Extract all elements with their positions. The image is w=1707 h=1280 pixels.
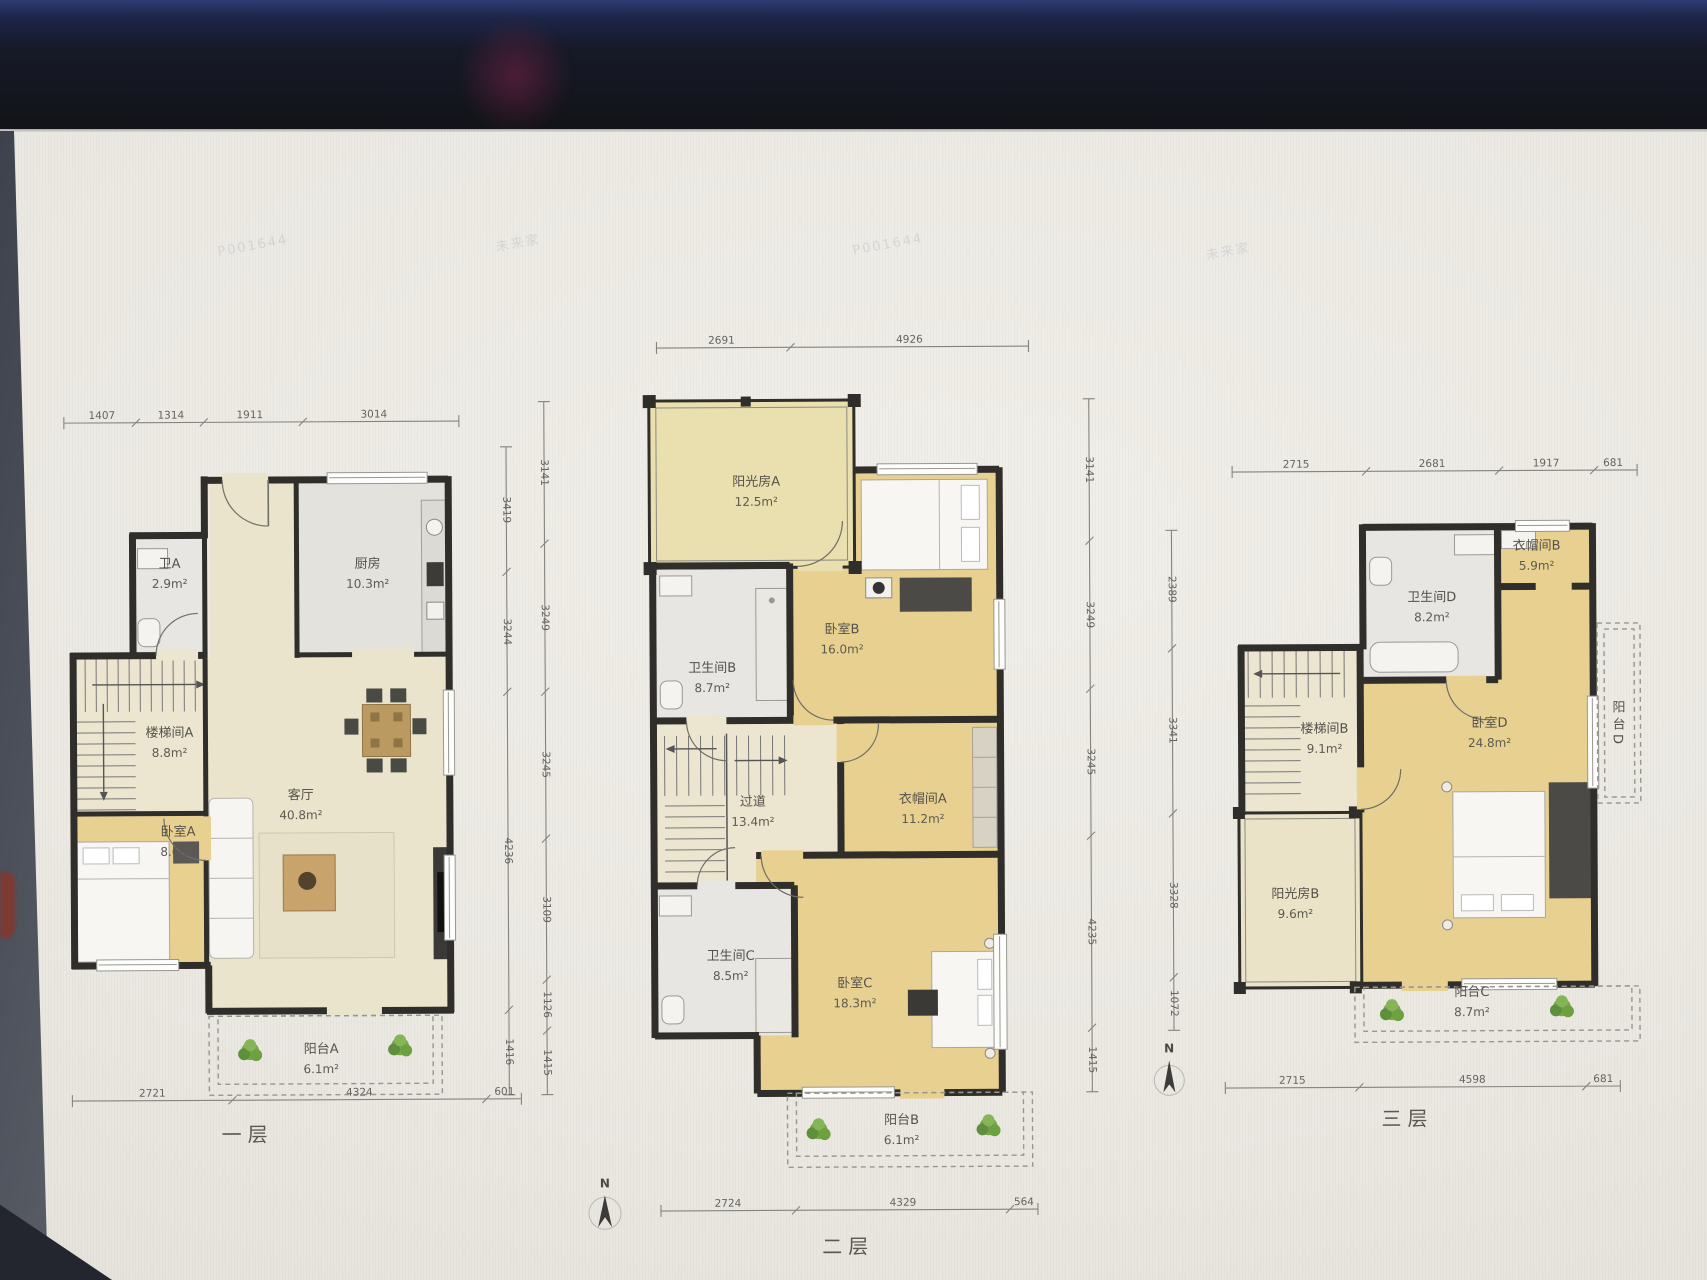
room-area: 11.2m²	[899, 809, 947, 827]
dim-f1-bottom-0: 2721	[139, 1088, 166, 1100]
room-area: 10.3m²	[346, 574, 389, 592]
dim-f1-right-1: 3244	[501, 618, 513, 645]
room-area: 2.9m²	[152, 574, 188, 592]
dim-f3-left-3: 1072	[1168, 990, 1180, 1017]
room-name: 卧室D	[1468, 714, 1511, 734]
room-label-balcony-c: 阳台C 8.7m²	[1454, 983, 1490, 1021]
dim-f2-bottom-0: 2724	[715, 1198, 742, 1210]
dim-f1-bottom-2: 601	[494, 1086, 514, 1098]
room-name: 卫生间B	[688, 659, 736, 679]
dim-f2-left-2: 3245	[540, 751, 552, 778]
dim-f2-right-4: 1415	[1086, 1046, 1098, 1073]
dim-f2-left-4: 1126	[541, 991, 553, 1018]
room-area: 9.1m²	[1301, 739, 1349, 757]
room-label-living: 客厅 40.8m²	[279, 786, 322, 824]
room-area: 24.8m²	[1468, 733, 1511, 751]
dim-f1-top-2: 1911	[236, 409, 263, 421]
dim-f2-right-2: 3245	[1085, 748, 1097, 775]
dim-f2-left-5: 1415	[541, 1049, 553, 1076]
dim-f1-top-3: 3014	[360, 408, 387, 420]
room-area: 18.3m²	[833, 994, 876, 1012]
room-name: 楼梯间A	[145, 724, 193, 744]
room-area: 8.2m²	[1407, 608, 1456, 626]
room-area: 12.5m²	[732, 492, 780, 510]
dim-f3-top-3: 681	[1603, 457, 1623, 469]
dim-f2-left-3: 3109	[540, 896, 552, 923]
room-label-closet-b: 衣帽间B 5.9m²	[1513, 537, 1561, 575]
dim-f1-right-3: 1416	[503, 1038, 515, 1065]
dim-f2-right-0: 3141	[1083, 456, 1095, 483]
room-label-closet-a: 衣帽间A 11.2m²	[899, 790, 947, 828]
room-label-bedroom-c: 卧室C 18.3m²	[833, 974, 876, 1012]
room-label-stair-b: 楼梯间B 9.1m²	[1300, 720, 1348, 758]
room-area: 8.7m²	[1454, 1002, 1490, 1020]
dim-f2-right-3: 4235	[1085, 918, 1097, 945]
room-label-bath-b: 卫生间B 8.7m²	[688, 659, 736, 697]
room-name: 卧室B	[820, 620, 863, 640]
floor2-plan	[537, 340, 1099, 1230]
dim-f2-left-0: 3141	[538, 459, 550, 486]
dim-f2-bottom-1: 4329	[890, 1197, 917, 1209]
screen-photo: P001644 未来家 P001644 未来家 卫A 2.9m² 厨房 10.3…	[0, 0, 1707, 1280]
room-label-stair-a: 楼梯间A 8.8m²	[145, 724, 193, 762]
dim-f1-right-0: 3419	[500, 496, 512, 523]
floorplan-layer: P001644 未来家 P001644 未来家 卫A 2.9m² 厨房 10.3…	[0, 0, 1707, 1280]
room-name: 衣帽间A	[899, 790, 947, 810]
floor3-title: 三层	[1381, 1102, 1433, 1131]
dim-f3-top-1: 2681	[1419, 458, 1446, 470]
dim-f3-left-0: 2389	[1166, 576, 1178, 603]
room-name: 卧室C	[833, 974, 876, 994]
dim-f2-top-0: 2691	[708, 335, 735, 347]
dim-f1-bottom-1: 4324	[346, 1087, 373, 1099]
room-label-kitchen: 厨房 10.3m²	[346, 555, 389, 593]
room-area: 8.5m²	[707, 966, 755, 984]
room-label-hallway: 过道 13.4m²	[731, 793, 774, 831]
room-label-balcony-a: 阳台A 6.1m²	[303, 1040, 339, 1078]
room-name: 阳台B	[884, 1111, 920, 1131]
room-name: 过道	[731, 793, 774, 813]
room-label-balcony-b: 阳台B 6.1m²	[884, 1111, 920, 1149]
dim-f1-right-2: 4236	[502, 837, 514, 864]
room-name: 阳台A	[303, 1040, 339, 1060]
room-name: 卧室A	[160, 823, 196, 843]
room-area: 8.6m²	[160, 842, 196, 860]
room-name: 阳光房B	[1271, 885, 1319, 905]
room-name: 楼梯间B	[1300, 720, 1348, 740]
room-area: 8.8m²	[146, 743, 194, 761]
room-name: 阳台C	[1454, 983, 1490, 1003]
floor2-title: 二层	[822, 1230, 874, 1259]
room-area: 16.0m²	[820, 640, 863, 658]
dim-f2-left-1: 3249	[539, 604, 551, 631]
floor1-title: 一层	[221, 1119, 273, 1148]
room-name: 卫A	[152, 555, 188, 575]
room-name: 衣帽间B	[1513, 537, 1561, 557]
room-name: 卫生间D	[1407, 588, 1456, 608]
room-name: 客厅	[279, 786, 322, 806]
floor3-plan	[1151, 464, 1642, 1096]
room-label-sunroom-b: 阳光房B 9.6m²	[1271, 885, 1319, 923]
dim-f3-bottom-2: 681	[1593, 1073, 1613, 1085]
room-area: 9.6m²	[1271, 904, 1319, 922]
dim-f3-top-0: 2715	[1283, 459, 1310, 471]
dim-f3-top-2: 1917	[1533, 457, 1560, 469]
north-label: N	[600, 1176, 610, 1190]
dim-f3-bottom-0: 2715	[1279, 1075, 1306, 1087]
room-area: 40.8m²	[279, 806, 322, 824]
room-label-bath-d: 卫生间D 8.2m²	[1407, 588, 1456, 626]
room-label-balcony-d: 阳台D	[1609, 700, 1624, 748]
dim-f1-top-0: 1407	[88, 410, 115, 422]
room-area: 5.9m²	[1513, 556, 1561, 574]
dim-f1-top-1: 1314	[157, 410, 184, 422]
dim-f3-left-1: 3341	[1166, 717, 1178, 744]
dim-f3-left-2: 3328	[1167, 882, 1179, 909]
room-label-bath-a: 卫A 2.9m²	[152, 555, 188, 593]
dim-f2-right-1: 3249	[1084, 601, 1096, 628]
room-label-bath-c: 卫生间C 8.5m²	[707, 947, 755, 985]
room-name: 厨房	[346, 555, 389, 575]
room-name: 阳台D	[1609, 700, 1624, 748]
room-area: 6.1m²	[303, 1059, 339, 1077]
room-label-bedroom-a: 卧室A 8.6m²	[160, 823, 196, 861]
north-label: N	[1164, 1041, 1174, 1055]
dim-f2-bottom-2: 564	[1014, 1196, 1034, 1208]
room-name: 卫生间C	[707, 947, 755, 967]
room-label-bedroom-d: 卧室D 24.8m²	[1468, 714, 1511, 752]
room-name: 阳光房A	[732, 473, 780, 493]
room-area: 8.7m²	[688, 678, 736, 696]
dim-f3-bottom-1: 4598	[1459, 1074, 1486, 1086]
room-area: 6.1m²	[884, 1130, 920, 1148]
dim-f2-top-1: 4926	[896, 334, 923, 346]
room-area: 13.4m²	[731, 812, 774, 830]
room-label-sunroom-a: 阳光房A 12.5m²	[732, 473, 780, 511]
floor1-plan	[64, 415, 522, 1107]
room-label-bedroom-b: 卧室B 16.0m²	[820, 620, 863, 658]
